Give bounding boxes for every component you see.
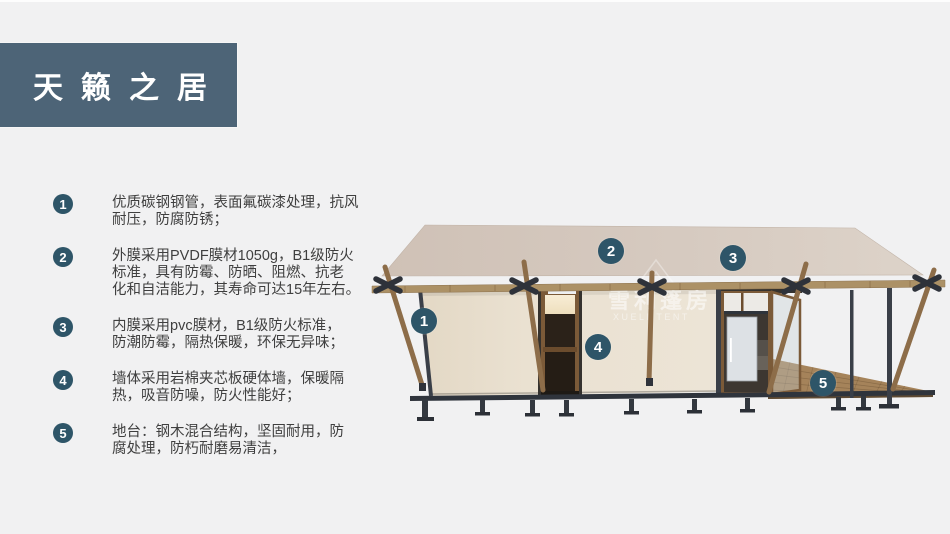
spec-text-3: 内膜采用pvc膜材，B1级防火标准， 防潮防霉，隔热保暖，环保无异味； [112, 316, 374, 352]
spec-badge-3: 3 [53, 317, 73, 337]
spec-text-1: 优质碳钢钢管，表面氟碳漆处理，抗风 耐压，防腐防锈； [112, 193, 374, 229]
spec-badge-5: 5 [53, 423, 73, 443]
roof-membrane [382, 225, 923, 276]
spec-badge-2: 2 [53, 247, 73, 267]
spec-text-2: 外膜采用PVDF膜材1050g，B1级防火 标准，具有防霉、防晒、阻燃、抗老 化… [112, 246, 374, 299]
spec-item-2: 2 外膜采用PVDF膜材1050g，B1级防火 标准，具有防霉、防晒、阻燃、抗老… [53, 246, 383, 299]
header-box: 天籁之居 [0, 43, 237, 127]
spec-badge-1: 1 [53, 194, 73, 214]
top-divider [0, 0, 950, 2]
spec-item-3: 3 内膜采用pvc膜材，B1级防火标准， 防潮防霉，隔热保暖，环保无异味； [53, 316, 383, 352]
glass-door-unit [716, 288, 802, 395]
left-door [538, 288, 582, 395]
slide: 天籁之居 1 优质碳钢钢管，表面氟碳漆处理，抗风 耐压，防腐防锈； 2 外膜采用… [0, 0, 950, 534]
spec-text-4: 墙体采用岩棉夹芯板硬体墙，保暖隔 热，吸音防噪，防火性能好； [112, 369, 374, 405]
spec-text-5: 地台：钢木混合结构，坚固耐用，防 腐处理，防朽耐磨易清洁， [112, 422, 374, 458]
page-title: 天籁之居 [0, 63, 225, 107]
tent-illustration: 雪利篷房 XUELI TENT [370, 205, 950, 430]
spec-list: 1 优质碳钢钢管，表面氟碳漆处理，抗风 耐压，防腐防锈； 2 外膜采用PVDF膜… [53, 193, 383, 458]
diagram-marker-4: 4 [585, 334, 611, 360]
diagram-marker-3: 3 [720, 245, 746, 271]
spec-item-4: 4 墙体采用岩棉夹芯板硬体墙，保暖隔 热，吸音防噪，防火性能好； [53, 369, 383, 405]
diagram-marker-1: 1 [411, 308, 437, 334]
spec-item-5: 5 地台：钢木混合结构，坚固耐用，防 腐处理，防朽耐磨易清洁， [53, 422, 383, 458]
diagram-marker-5: 5 [810, 370, 836, 396]
diagram-marker-2: 2 [598, 238, 624, 264]
spec-badge-4: 4 [53, 370, 73, 390]
spec-item-1: 1 优质碳钢钢管，表面氟碳漆处理，抗风 耐压，防腐防锈； [53, 193, 383, 229]
